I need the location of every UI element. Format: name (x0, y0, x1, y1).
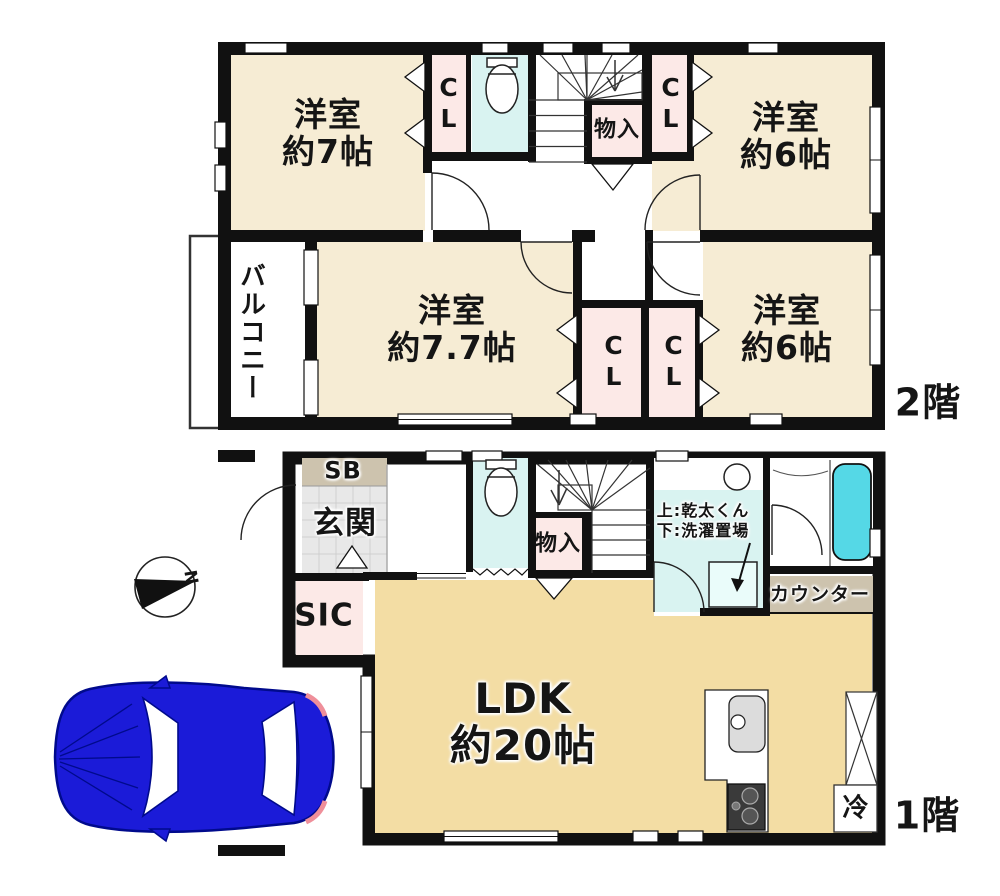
room-label-2f-se: 洋室 約6帖 (741, 293, 833, 367)
closet-label-2f-se: CL (659, 331, 687, 393)
cupboard-space (846, 692, 877, 785)
laundry-space (709, 562, 757, 607)
shoe-box-label: SB (324, 458, 362, 485)
storage-label-2f: 物入 (594, 119, 640, 144)
room-label-2f-ne: 洋室 約6帖 (740, 100, 832, 174)
bathtub (833, 464, 871, 560)
closet-label-2f-sw: CL (599, 331, 627, 393)
laundry-note: 上:乾太くん 下:洗濯置場 (657, 501, 749, 541)
closet-label-2f-ne: CL (656, 73, 684, 135)
counter-label: カウンター (770, 584, 870, 605)
wash-basin (724, 464, 750, 490)
room-label-2f-nw: 洋室 約7帖 (282, 97, 374, 171)
ldk-label: LDK 約20帖 (450, 675, 596, 769)
fridge-label: 冷 (842, 794, 869, 823)
entrance-label: 玄関 (313, 507, 377, 542)
toilet-2f-fixture (486, 58, 518, 113)
shoe-closet-label: SIC (294, 599, 354, 634)
floor1-label: 1階 (894, 795, 960, 838)
floorplan: 洋室 約7帖 CL 物入 CL 洋室 約6帖 バルコニー 洋室 約7.7帖 CL… (0, 0, 1000, 896)
toilet-1f-fixture (485, 460, 517, 516)
car (55, 676, 334, 841)
floor2-label: 2階 (895, 382, 961, 425)
balcony-label: バルコニー (235, 262, 264, 402)
storage-label-1f: 物入 (535, 533, 581, 558)
compass (134, 557, 196, 617)
closet-label-2f-nw: CL (434, 73, 462, 135)
compass-north-label: N (179, 569, 200, 587)
room-label-2f-sw: 洋室 約7.7帖 (387, 293, 516, 367)
